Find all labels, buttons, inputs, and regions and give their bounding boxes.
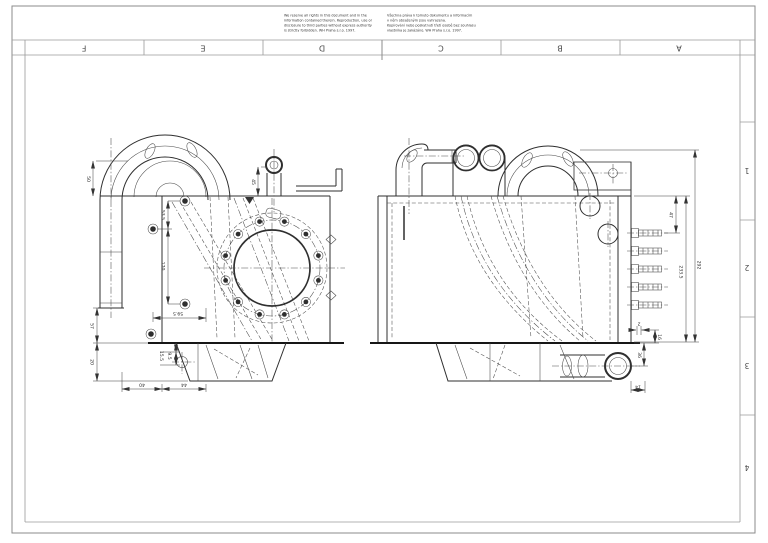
- dimension-label: 40: [139, 382, 145, 388]
- dimension-label: 44: [181, 382, 187, 388]
- dimension-label: 9.5: [166, 352, 172, 359]
- svg-text:Všechna práva k tomuto dokumen: Všechna práva k tomuto dokumentu a infor…: [387, 14, 473, 18]
- svg-text:vlastníka je zakázáno. WH Prah: vlastníka je zakázáno. WH Praha s.r.o. 1…: [387, 29, 462, 33]
- dimension-label: 233.5: [678, 265, 684, 278]
- svg-text:Kopírování nebo poskytnutí tře: Kopírování nebo poskytnutí třetí osobě b…: [387, 24, 476, 28]
- svg-text:is strictly forbidden. WH Prah: is strictly forbidden. WH Praha s.r.o. 1…: [284, 29, 356, 33]
- dimension-label: 15.5: [158, 351, 164, 361]
- grid-column-label: A: [676, 43, 682, 52]
- copyright-notice-en: We reserve all rights in this document a…: [284, 14, 373, 33]
- grid-column-label: F: [81, 43, 86, 52]
- side-view-dimensions: 47 233.5 292 2 16 36 14: [580, 150, 702, 393]
- dimension-label: 59.5: [173, 310, 183, 316]
- dimension-label: 16: [656, 334, 662, 340]
- flange-studs: [627, 229, 668, 310]
- dimension-label: 45: [250, 179, 256, 185]
- dimension-label: 14: [635, 384, 641, 390]
- svg-text:disclosure to third parties wi: disclosure to third parties without expr…: [284, 24, 372, 28]
- dimension-label: 57: [89, 323, 95, 329]
- grid-row-label: 1: [744, 166, 749, 175]
- dimension-label: 36: [636, 352, 642, 358]
- grid-column-label: D: [319, 43, 325, 52]
- dimension-label: 292: [696, 261, 702, 270]
- copyright-notice-cs: Všechna práva k tomuto dokumentu a infor…: [387, 14, 476, 33]
- svg-text:We reserve all rights in this: We reserve all rights in this document a…: [284, 14, 367, 18]
- side-view: 47 233.5 292 2 16 36 14: [370, 138, 702, 393]
- front-view: 50 45 53.5 170 59.5 57 20 15.5 9.5: [85, 135, 345, 392]
- sheet-frame: F E D C B A 1 2 3 4: [12, 6, 755, 533]
- svg-text:information contained therein.: information contained therein. Reproduct…: [284, 19, 373, 23]
- dimension-label: 50: [85, 176, 91, 182]
- grid-column-label: B: [557, 43, 563, 52]
- grid-row-label: 3: [744, 361, 749, 370]
- dimension-label: 2: [637, 321, 640, 327]
- dimension-label: 53.5: [160, 210, 166, 220]
- grid-column-label: E: [200, 43, 205, 52]
- grid-column-label: C: [438, 43, 444, 52]
- weld-symbol: [245, 197, 254, 204]
- drawing-sheet: F E D C B A 1 2 3 4 We reserve all right…: [0, 0, 768, 543]
- dimension-label: 47: [668, 212, 674, 218]
- svg-text:v něm obsaženým jsou vyhrazena: v něm obsaženým jsou vyhrazena.: [387, 19, 446, 23]
- dimension-label: 20: [89, 359, 95, 365]
- dimension-label: 170: [160, 262, 166, 271]
- grid-row-label: 4: [744, 463, 749, 472]
- grid-row-label: 2: [744, 263, 749, 272]
- technical-drawing: F E D C B A 1 2 3 4 We reserve all right…: [0, 0, 768, 543]
